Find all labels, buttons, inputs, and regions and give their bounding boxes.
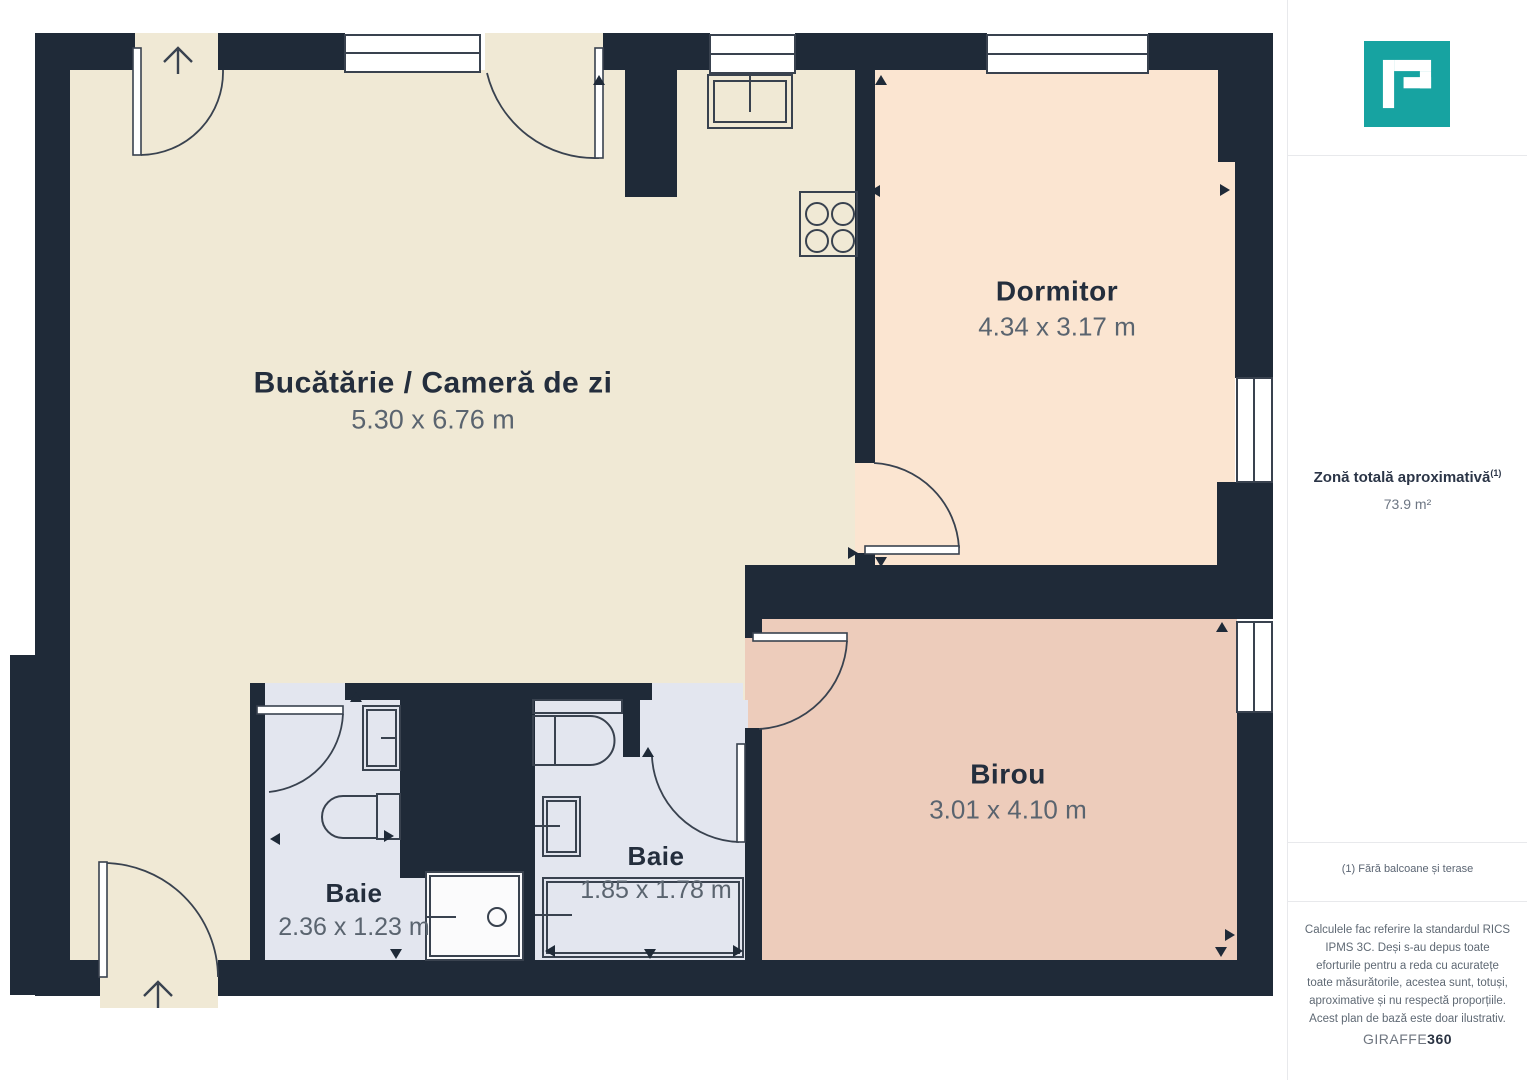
room-label-bedroom: Dormitor 4.34 x 3.17 m xyxy=(978,276,1136,343)
door-leaf-entry-top xyxy=(133,48,141,155)
room-name: Bucătărie / Cameră de zi xyxy=(254,367,613,401)
room-label-bath1: Baie 2.36 x 1.23 m xyxy=(278,878,429,942)
floorplan-page: Bucătărie / Cameră de zi 5.30 x 6.76 m D… xyxy=(0,0,1527,1080)
total-area-title-text: Zonă totală aproximativă xyxy=(1314,469,1491,486)
room-dims: 1.85 x 1.78 m xyxy=(580,876,731,905)
sidebar-divider-2 xyxy=(1288,842,1527,843)
room-dims: 3.01 x 4.10 m xyxy=(929,795,1087,826)
window-top-left xyxy=(345,35,480,72)
room-dims: 2.36 x 1.23 m xyxy=(278,913,429,942)
disclaimer-section: Calculele fac referire la standardul RIC… xyxy=(1288,922,1527,1029)
footnote-text: (1) Fără balcoane și terase xyxy=(1288,863,1527,875)
door-leaf-bedroom xyxy=(865,546,959,554)
room-label-bath2: Baie 1.85 x 1.78 m xyxy=(580,841,731,905)
shower-bath1 xyxy=(426,872,523,960)
disclaimer-text: Calculele fac referire la standardul RIC… xyxy=(1288,922,1527,1029)
door-arc-entry-top xyxy=(141,70,223,155)
room-dims: 4.34 x 3.17 m xyxy=(978,312,1136,343)
door-arc-entry-bottom xyxy=(103,863,218,977)
washing-machine xyxy=(363,706,400,770)
room-name: Dormitor xyxy=(978,276,1136,308)
door-arc-bedroom xyxy=(874,463,959,548)
kitchen-sink xyxy=(708,75,792,128)
door-leaf-office xyxy=(753,633,847,641)
room-name: Birou xyxy=(929,759,1087,791)
door-arc-bath2 xyxy=(652,757,739,842)
total-area-title: Zonă totală aproximativă(1) xyxy=(1288,468,1527,486)
sink-bath2 xyxy=(535,797,580,856)
room-name: Baie xyxy=(278,878,429,909)
entry-arrow-bottom xyxy=(144,982,172,1008)
giraffe360-logo xyxy=(1364,41,1450,127)
brand-mark: GIRAFFE360 xyxy=(1288,1031,1527,1047)
stove xyxy=(800,192,857,256)
window-right-bedroom xyxy=(1237,378,1272,482)
floorplan-canvas: Bucătărie / Cameră de zi 5.30 x 6.76 m D… xyxy=(0,0,1287,1080)
footnote-section: (1) Fără balcoane și terase xyxy=(1288,863,1527,875)
door-leaf-entry-bottom xyxy=(99,862,107,977)
entry-arrow-top xyxy=(164,48,192,74)
brand-suffix: 360 xyxy=(1427,1031,1452,1047)
info-sidebar: Zonă totală aproximativă(1) 73.9 m² (1) … xyxy=(1287,0,1527,1080)
door-arc-balcony xyxy=(487,73,599,158)
room-name: Baie xyxy=(580,841,731,872)
door-leaf-bath2 xyxy=(737,744,745,842)
total-area-footnote-ref: (1) xyxy=(1490,468,1501,478)
window-top-middle xyxy=(710,35,795,73)
room-label-office: Birou 3.01 x 4.10 m xyxy=(929,759,1087,826)
direction-markers xyxy=(270,75,1235,959)
toilet-bath1 xyxy=(322,794,400,839)
room-dims: 5.30 x 6.76 m xyxy=(254,405,613,436)
door-leaf-bath1 xyxy=(257,706,343,714)
door-arc-office xyxy=(759,641,847,729)
door-leaf-balcony xyxy=(595,48,603,158)
total-area-value: 73.9 m² xyxy=(1288,496,1527,512)
brand-name: GIRAFFE xyxy=(1363,1031,1427,1047)
toilet-bath2 xyxy=(533,700,622,765)
door-arc-bath1 xyxy=(269,714,343,792)
plan-linework xyxy=(0,0,1287,1080)
room-label-kitchen-living: Bucătărie / Cameră de zi 5.30 x 6.76 m xyxy=(254,367,613,436)
window-right-office xyxy=(1237,622,1272,712)
total-area-section: Zonă totală aproximativă(1) 73.9 m² xyxy=(1288,468,1527,512)
window-top-bedroom xyxy=(987,35,1148,73)
sidebar-divider-3 xyxy=(1288,901,1527,902)
sidebar-divider-1 xyxy=(1288,155,1527,156)
